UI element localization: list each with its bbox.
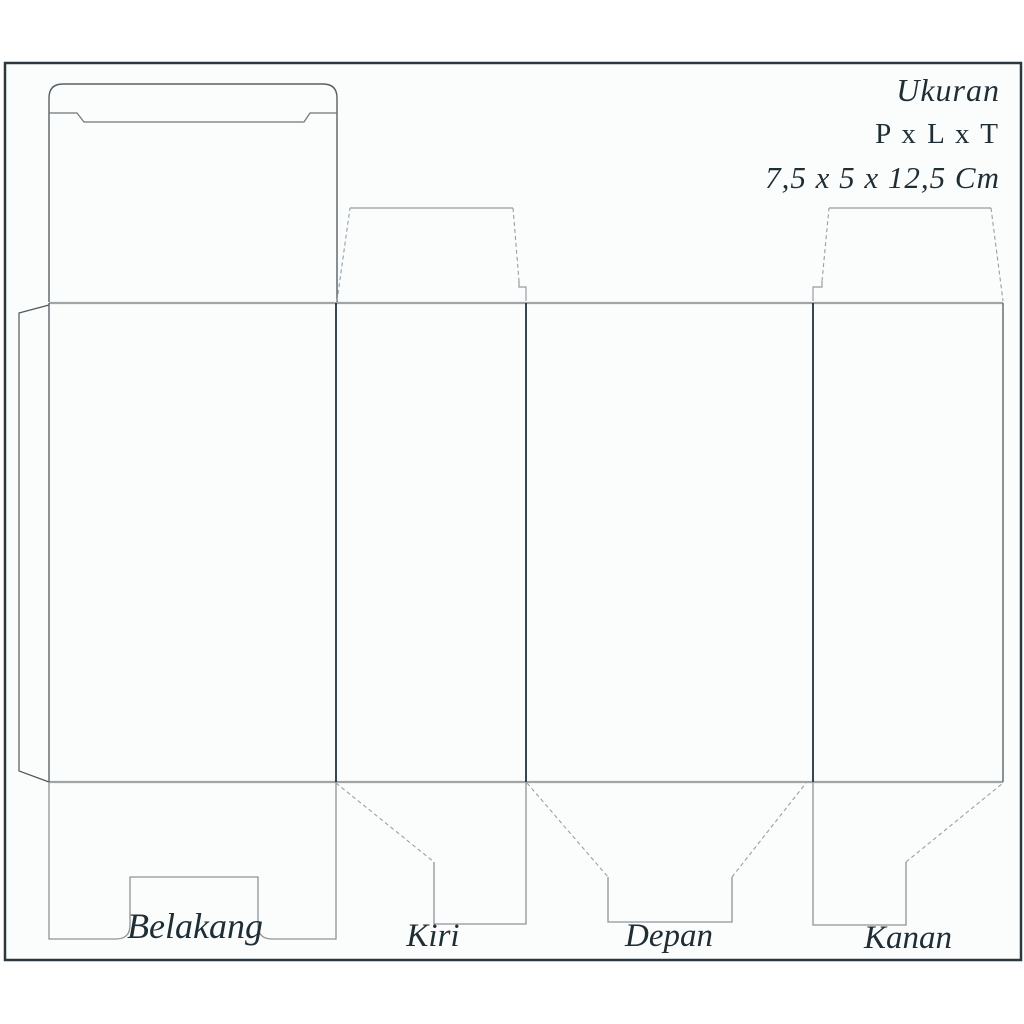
size-title: Ukuran [765,72,1000,109]
size-dimensions: 7,5 x 5 x 12,5 Cm [765,160,1000,196]
panel-label-kiri: Kiri [406,920,459,953]
box-dieline-page: Ukuran P x L x T 7,5 x 5 x 12,5 Cm Belak… [0,0,1024,1024]
panel-label-belakang: Belakang [127,908,263,944]
panel-label-kanan: Kanan [864,922,952,955]
size-formula: P x L x T [765,118,1000,151]
size-annotation: Ukuran P x L x T 7,5 x 5 x 12,5 Cm [765,72,1000,196]
panel-label-depan: Depan [625,920,713,953]
frame-border [5,63,1021,960]
